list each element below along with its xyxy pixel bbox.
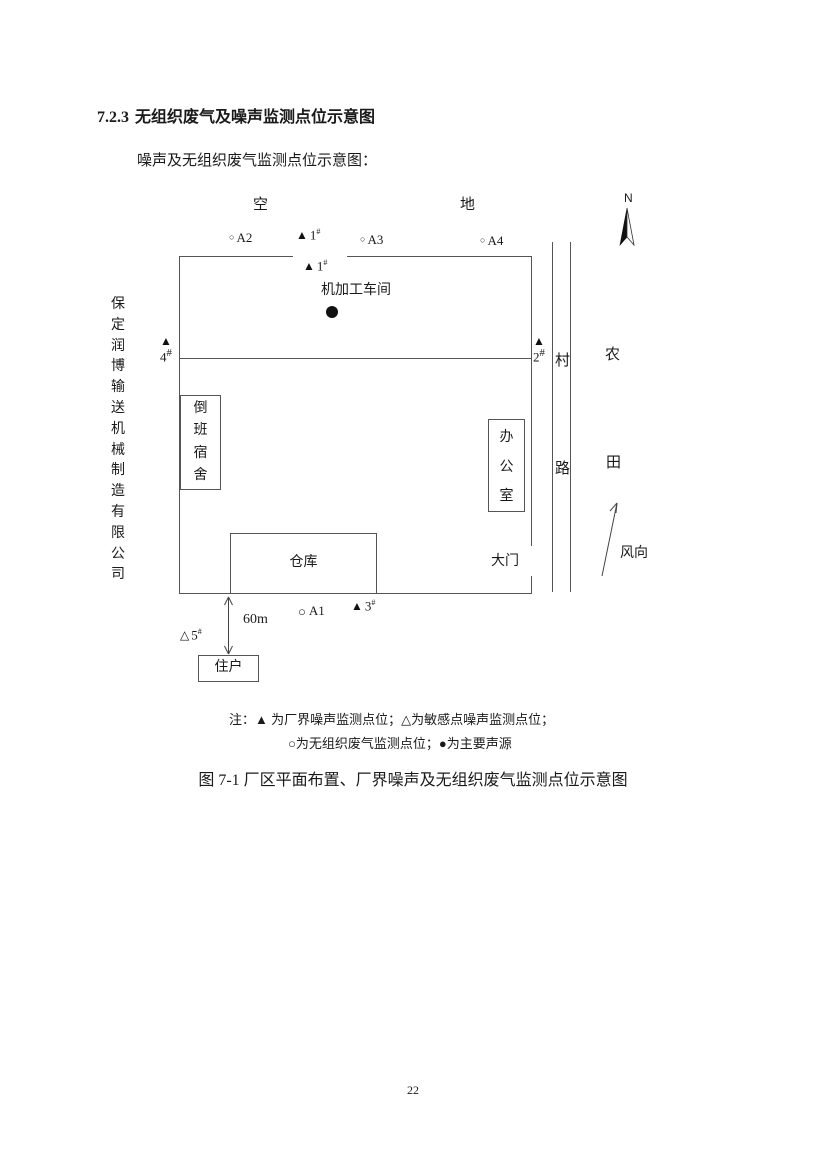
gas-point-a4: ○A4 [480,234,503,248]
distance-label: 60m [243,612,268,629]
area-label-empty-land-left: 空 [253,196,268,214]
distance-double-arrow-icon [221,595,236,656]
open-circle-icon: ○ [480,235,485,245]
gas-point-a1: ○A1 [298,604,325,619]
north-arrow-icon [616,207,638,248]
factory-boundary-top-left-segment [179,256,293,257]
section-title: 无组织废气及噪声监测点位示意图 [135,109,375,126]
road-line-left [552,242,553,592]
gate-label: 大门 [491,554,519,571]
noise-point-1-inner: ▲1# [303,259,327,274]
open-circle-icon: ○ [229,232,234,242]
noise-point-3: ▲3# [351,599,375,614]
resident-building: 住户 [198,655,259,682]
legend-note-line1: 注：▲ 为厂界噪声监测点位；△为敏感点噪声监测点位； [229,709,554,728]
open-circle-icon: ○ [360,234,365,244]
dorm-building: 倒班宿舍 [180,395,221,490]
farm-label-bottom-char: 田 [606,454,621,472]
open-circle-icon: ○ [298,604,306,619]
company-name: 保定润博输送机械制造有限公司 [109,295,127,586]
sensitive-noise-point-5: △5# [180,628,202,643]
workshop-divider-line [179,358,532,359]
document-page: 7.2.3无组织废气及噪声监测点位示意图 噪声及无组织废气监测点位示意图： 空 … [0,0,826,1169]
factory-boundary-right-upper-segment [531,256,532,546]
gas-point-a3: ○A3 [360,233,383,247]
open-triangle-icon: △ [180,628,189,642]
noise-point-1-outer: ▲1# [296,228,320,243]
road-label-top-char: 村 [555,352,570,370]
noise-point-2: ▲ 2# [528,335,550,364]
warehouse-building: 仓库 [230,533,377,594]
filled-triangle-icon: ▲ [351,599,363,613]
intro-text: 噪声及无组织废气监测点位示意图： [137,149,377,170]
wind-direction-label: 风向 [620,546,648,563]
page-number: 22 [0,1083,826,1098]
factory-boundary-right-lower-segment [531,576,532,594]
road-line-right [570,242,571,592]
road-label-bottom-char: 路 [555,460,570,478]
filled-triangle-icon: ▲ [296,228,308,242]
legend-note-line2: ○为无组织废气监测点位；●为主要声源 [288,733,512,752]
workshop-label: 机加工车间 [306,283,406,300]
factory-boundary-top-right-segment [347,256,532,257]
farm-label-top-char: 农 [605,346,620,364]
area-label-empty-land-right: 地 [460,196,475,214]
wind-direction-arrow-icon [597,498,623,580]
gas-point-a2: ○A2 [229,231,252,245]
figure-caption: 图 7-1 厂区平面布置、厂界噪声及无组织废气监测点位示意图 [0,766,826,790]
north-label: N [624,191,633,205]
main-noise-source-dot [326,306,338,318]
office-building: 办公室 [488,419,525,512]
filled-triangle-icon: ▲ [303,259,315,273]
noise-point-4: ▲ 4# [154,335,178,364]
section-number: 7.2.3 [97,109,129,126]
section-heading: 7.2.3无组织废气及噪声监测点位示意图 [97,103,375,127]
